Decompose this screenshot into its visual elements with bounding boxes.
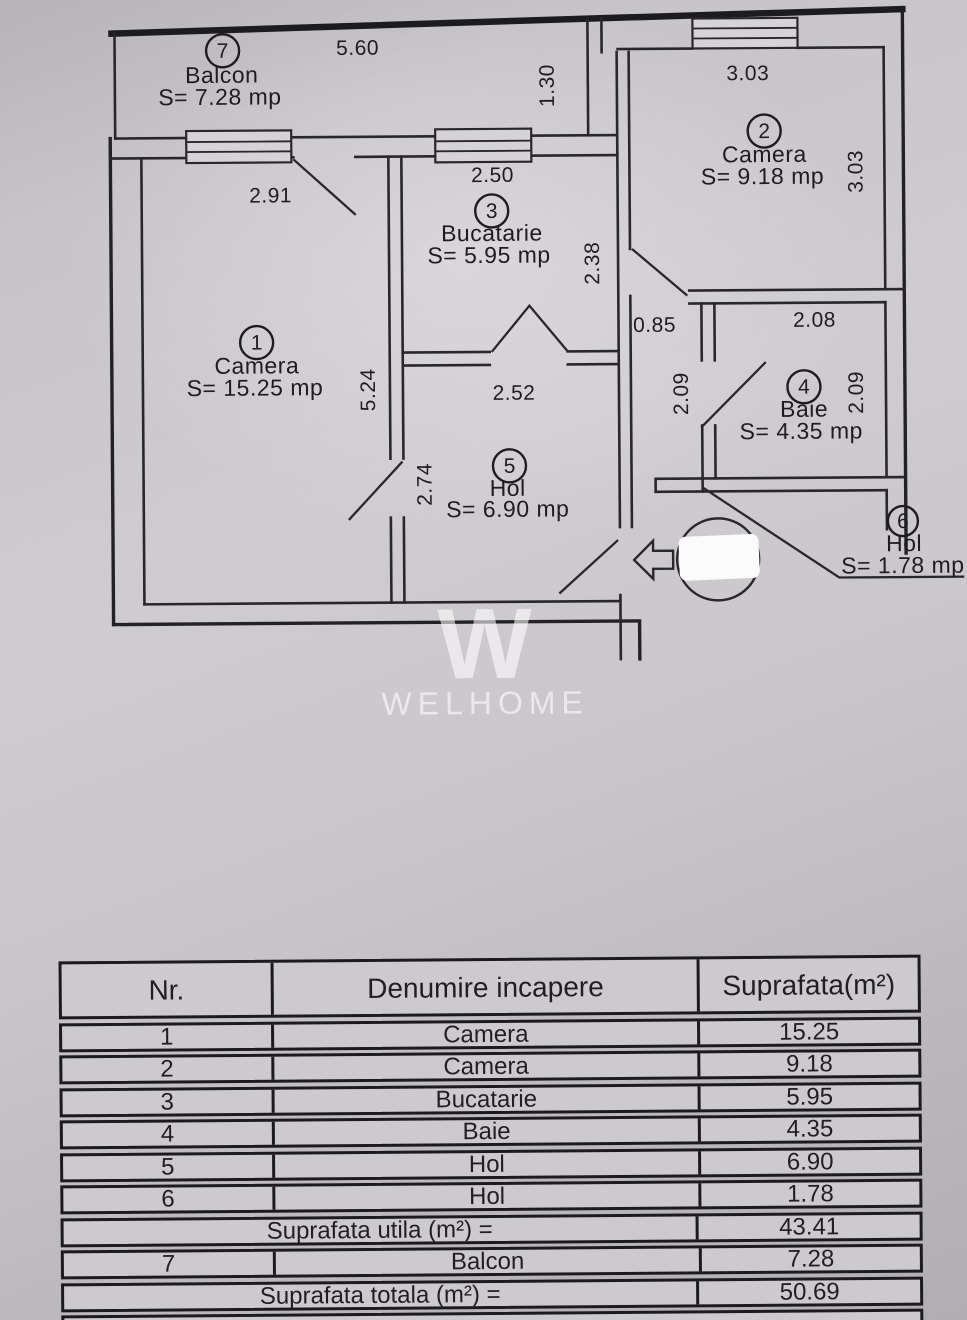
dim-balcony-depth: 1.30 (536, 64, 559, 107)
dim-kitchen-width: 2.50 (471, 164, 514, 187)
areas-table: Nr. Denumire incapere Suprafata(m²) 1 Ca… (59, 955, 924, 1320)
header-nr: Nr. (62, 963, 275, 1017)
table-row: 3 Bucatarie 5.95 (60, 1081, 922, 1117)
table-row: 4 Baie 4.35 (60, 1114, 922, 1150)
entrance-arrow-icon (634, 541, 673, 579)
svg-text:S= 7.28 mp: S= 7.28 mp (158, 83, 281, 110)
cell-name: Hol (276, 1183, 699, 1209)
room-label-hol5: 5 Hol S= 6.90 mp (446, 449, 570, 522)
cell-nr: 3 (63, 1089, 275, 1114)
cell-name: Baie (275, 1118, 698, 1144)
cell-nr: 1 (62, 1024, 274, 1049)
room-label-hol6: 6 Hol S= 1.78 mp (841, 506, 965, 579)
floor-plan-photo: 7 Balcon S= 7.28 mp 1 Camera S= 15.25 mp… (0, 0, 967, 1320)
dim-baie-width: 2.08 (793, 309, 836, 332)
table-row: 5 Hol 6.90 (60, 1146, 922, 1182)
svg-text:S= 1.78 mp: S= 1.78 mp (841, 552, 964, 579)
cell-area: 4.35 (698, 1117, 919, 1142)
cell-area: 6.90 (698, 1149, 919, 1174)
totala-value: 50.69 (699, 1279, 920, 1304)
room-label-balcon: 7 Balcon S= 7.28 mp (158, 34, 282, 110)
dim-camera2-height: 3.03 (844, 150, 867, 193)
totala-label: Suprafata totala (m²) = (64, 1281, 699, 1309)
room-label-camera2: 2 Camera S= 9.18 mp (700, 114, 824, 189)
dim-hol-width: 2.52 (492, 382, 535, 405)
utila-label: Suprafata utila (m²) = (64, 1216, 699, 1244)
dim-hol-height: 2.74 (413, 463, 436, 506)
cell-name: Camera (274, 1021, 697, 1047)
cell-area: 7.28 (699, 1247, 920, 1272)
cell-name: Bucatarie (275, 1086, 698, 1112)
table-row: 7 Balcon 7.28 (61, 1244, 923, 1280)
window-kitchen (435, 129, 531, 163)
cell-name: Camera (275, 1053, 698, 1079)
room-label-camera1: 1 Camera S= 15.25 mp (186, 326, 323, 401)
cell-nr: 7 (64, 1252, 276, 1277)
cell-nr: 4 (63, 1122, 275, 1147)
dim-corridor-height: 2.09 (670, 372, 693, 415)
balcony-door-swing (293, 159, 355, 215)
table-row: 1 Camera 15.25 (59, 1016, 921, 1052)
camera2-door-swing (632, 249, 687, 296)
dim-camera1-height: 5.24 (357, 368, 380, 411)
window-camera2 (692, 18, 797, 49)
cell-nr: 2 (62, 1057, 274, 1082)
dim-camera2-width: 3.03 (726, 62, 769, 85)
table-row: 2 Camera 9.18 (59, 1049, 921, 1085)
redacted-stamp (677, 518, 760, 601)
cell-area: 9.18 (697, 1052, 918, 1077)
dim-corridor-width: 0.85 (633, 314, 676, 337)
svg-text:S= 4.35 mp: S= 4.35 mp (740, 417, 863, 444)
cell-area: 15.25 (697, 1019, 918, 1044)
header-area: Suprafata(m²) (697, 958, 918, 1012)
table-row: 6 Hol 1.78 (60, 1179, 922, 1215)
svg-text:S= 5.95 mp: S= 5.95 mp (427, 242, 550, 269)
dim-camera1-width: 2.91 (249, 184, 292, 207)
cell-name: Hol (275, 1151, 698, 1177)
welhome-watermark: W WELHOME (381, 587, 589, 721)
room-label-bucatarie: 3 Bucatarie S= 5.95 mp (427, 194, 551, 268)
svg-text:S= 15.25 mp: S= 15.25 mp (187, 374, 324, 401)
svg-text:2: 2 (758, 120, 770, 143)
svg-text:S= 9.18 mp: S= 9.18 mp (701, 163, 824, 190)
dim-baie-height: 2.09 (845, 371, 868, 414)
cell-nr: 5 (63, 1154, 275, 1179)
camera1-door-swing (348, 462, 402, 520)
dim-balcony-width: 5.60 (336, 37, 379, 60)
table-header-row: Nr. Denumire incapere Suprafata(m²) (59, 955, 921, 1020)
cell-area: 5.95 (698, 1084, 919, 1109)
floor-plan-drawing: 7 Balcon S= 7.28 mp 1 Camera S= 15.25 mp… (0, 0, 967, 793)
header-name: Denumire incapere (274, 959, 697, 1014)
welhome-logo-text: WELHOME (381, 684, 589, 721)
entrance-door-swing (559, 540, 618, 593)
table-row-suprafata-utila: Suprafata utila (m²) = 43.41 (61, 1211, 923, 1247)
utila-value: 43.41 (699, 1214, 920, 1239)
welhome-logo-mark: W (437, 588, 533, 701)
svg-text:7: 7 (217, 40, 229, 63)
cell-nr: 6 (63, 1187, 275, 1212)
cell-name: Balcon (276, 1248, 699, 1274)
svg-text:1: 1 (251, 332, 263, 355)
window-camera1 (186, 130, 291, 163)
table-row-suprafata-totala: Suprafata totala (m²) = 50.69 (61, 1276, 923, 1312)
dim-kitchen-height: 2.38 (581, 242, 604, 285)
cell-area: 1.78 (698, 1182, 919, 1207)
kitchen-door-swing (491, 305, 567, 352)
svg-text:S= 6.90 mp: S= 6.90 mp (446, 495, 569, 522)
